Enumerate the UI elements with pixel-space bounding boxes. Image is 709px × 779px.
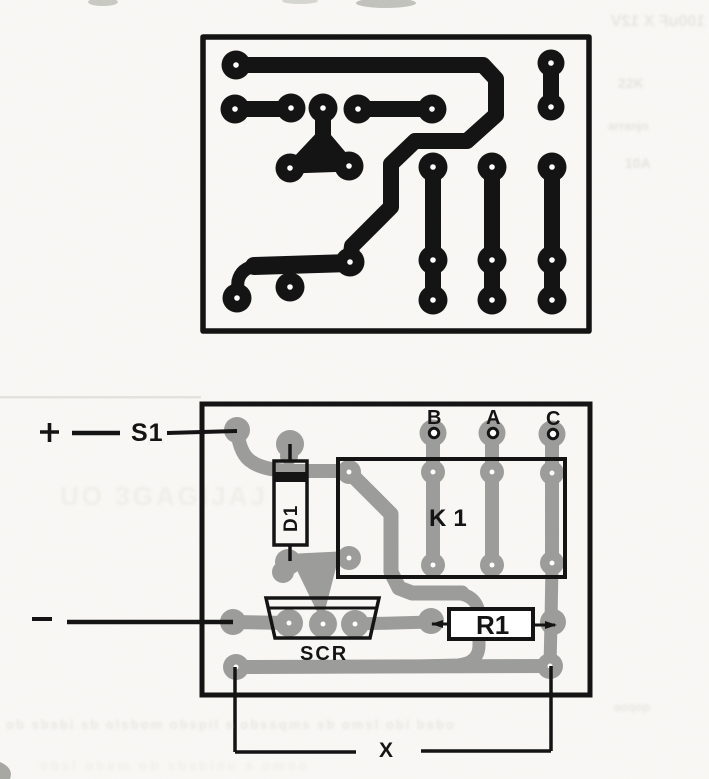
svg-text:aoqop: aoqop	[614, 700, 650, 714]
svg-text:C: C	[546, 408, 560, 430]
svg-text:A: A	[486, 407, 500, 429]
svg-text:10A: 10A	[625, 155, 651, 171]
svg-text:R1: R1	[476, 610, 509, 640]
svg-text:obsl obom ob sbsbinu s omoo: obsl obom ob sbsbinu s omoo	[40, 758, 310, 773]
svg-text:22K: 22K	[618, 75, 644, 91]
svg-text:S1: S1	[131, 419, 164, 447]
svg-text:K1: K1	[429, 505, 474, 532]
svg-text:100uF X 12V: 100uF X 12V	[610, 13, 705, 30]
svg-text:X: X	[379, 739, 393, 762]
svg-text:SCR: SCR	[300, 643, 348, 665]
svg-text:B: B	[427, 407, 441, 429]
svg-text:ob sbsbi sb olsbom obspil s ob: ob sbsbi sb olsbom obspil s obssqms sb o…	[6, 717, 456, 732]
svg-text:D1: D1	[281, 504, 302, 532]
svg-text:UO 3GAGIJAJ: UO 3GAGIJAJ	[60, 481, 268, 511]
svg-text:arranjo: arranjo	[608, 119, 649, 133]
